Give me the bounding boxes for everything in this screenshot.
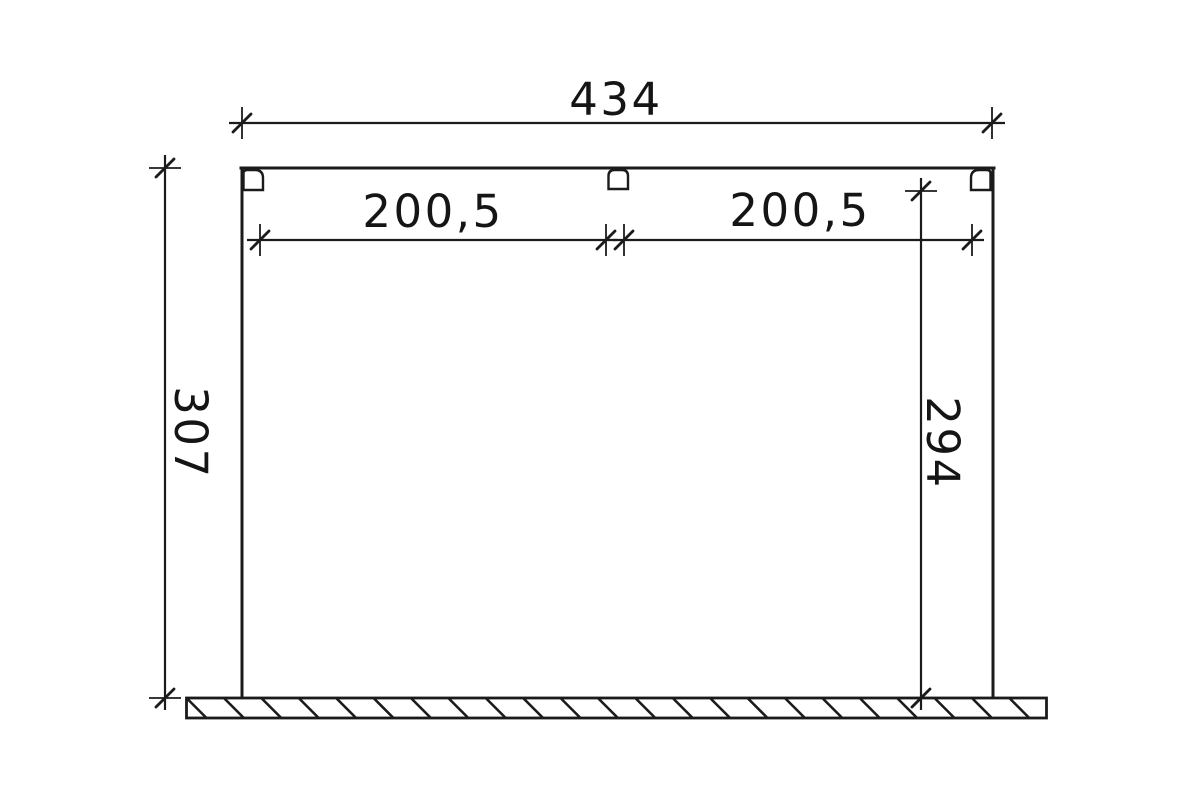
dimension-overall-width: 434 xyxy=(229,73,1005,126)
dimension-height-right-label: 294 xyxy=(916,396,969,489)
dimension-span-left: 200,5 xyxy=(247,185,617,240)
dimension-span-right: 200,5 xyxy=(613,184,984,240)
dimension-span-left-label: 200,5 xyxy=(362,185,503,238)
drawing-svg: 434 200,5 200,5 307 294 xyxy=(0,0,1200,800)
bracket-tab-left xyxy=(244,170,264,190)
bracket-tab-right xyxy=(971,170,991,190)
technical-drawing-canvas: 434 200,5 200,5 307 294 xyxy=(0,0,1200,800)
bracket-tab-middle xyxy=(609,170,629,189)
dimension-height-left: 307 xyxy=(164,155,217,710)
dimension-ticks xyxy=(149,107,1001,707)
dimension-overall-width-label: 434 xyxy=(569,73,662,126)
dimension-height-left-label: 307 xyxy=(164,386,217,479)
dimension-span-right-label: 200,5 xyxy=(729,184,870,237)
dimension-height-right: 294 xyxy=(916,178,969,710)
